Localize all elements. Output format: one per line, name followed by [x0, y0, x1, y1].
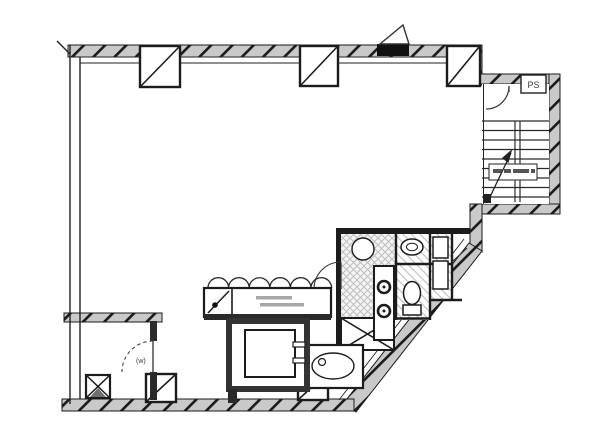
column-top-1 [140, 46, 180, 87]
stair-bottom-wall [470, 204, 560, 214]
stair-landing-label-box [489, 164, 537, 180]
stair-right-wall [549, 74, 560, 214]
floor-plan-page: PS [0, 0, 600, 443]
elevator-door-jamb [293, 342, 305, 347]
shelf-fixtures [433, 237, 448, 289]
lavatory-room [307, 345, 363, 388]
column-top-3 [447, 46, 480, 86]
shaft-x-box [86, 375, 110, 398]
floor-plan-canvas: PS [0, 0, 600, 443]
elevator-car [245, 330, 295, 377]
storage-wall-upper [150, 321, 157, 341]
stove-counter [374, 266, 394, 340]
toilet-fixture [403, 282, 421, 316]
pipe-shaft-box: PS [521, 75, 546, 93]
top-wall [68, 45, 482, 57]
elevator-door-jamb [293, 358, 305, 363]
storage-wall-lower [150, 372, 157, 400]
storage-top-wall [64, 313, 162, 322]
hand-basin-fixture [401, 239, 423, 255]
counter-scan-marks [256, 296, 292, 300]
column-top-2 [300, 46, 338, 86]
counter-drain-dot [212, 302, 218, 308]
elevator-wall-stub [228, 389, 237, 403]
core-top-wall [336, 228, 470, 234]
counter-scan-marks [260, 303, 304, 307]
elevator [228, 321, 307, 403]
pipe-shaft-label: PS [527, 80, 539, 90]
sink-fixture [352, 238, 374, 260]
door-sill [377, 44, 409, 56]
window-marker-label: (w) [136, 358, 146, 365]
stairwell: PS [482, 75, 549, 204]
